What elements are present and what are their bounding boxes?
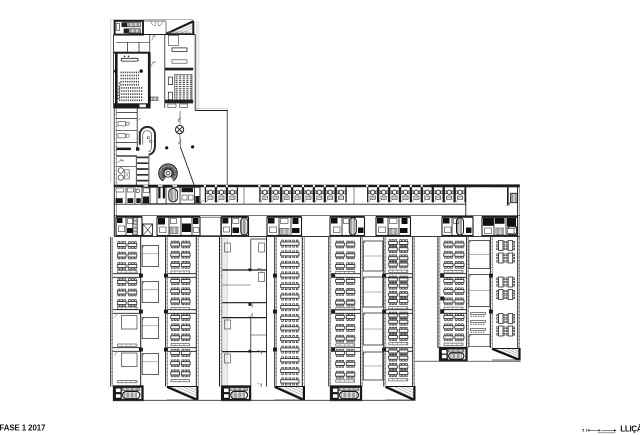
- svg-text:FASE 1 2017: FASE 1 2017: [0, 424, 46, 433]
- svg-text:LLIÇÀ: LLIÇÀ: [620, 425, 640, 434]
